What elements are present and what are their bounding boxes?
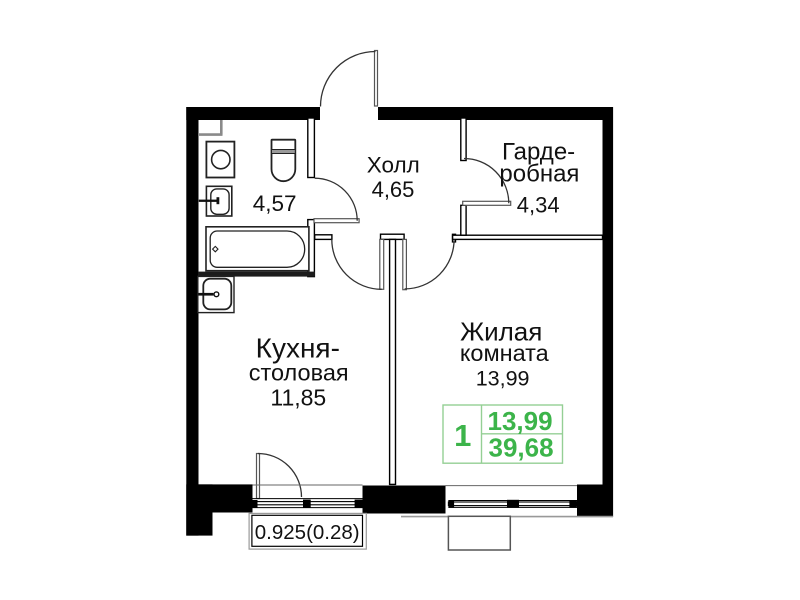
svg-text:робная: робная (499, 161, 579, 188)
svg-text:Холл: Холл (367, 152, 420, 177)
svg-text:13,99: 13,99 (488, 406, 553, 436)
svg-text:комната: комната (460, 340, 550, 366)
svg-text:13,99: 13,99 (476, 367, 530, 391)
svg-text:4,65: 4,65 (372, 177, 415, 202)
svg-text:39,68: 39,68 (489, 433, 554, 463)
svg-text:4,34: 4,34 (517, 192, 560, 217)
svg-text:0.925(0.28): 0.925(0.28) (255, 521, 360, 544)
svg-text:4,57: 4,57 (253, 191, 297, 216)
svg-text:столовая: столовая (249, 359, 349, 385)
svg-text:1: 1 (454, 418, 471, 453)
svg-text:11,85: 11,85 (270, 385, 326, 411)
